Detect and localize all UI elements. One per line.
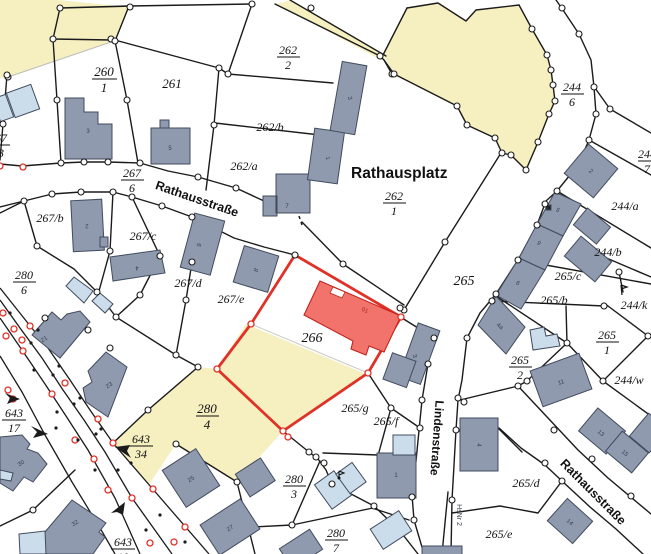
svg-text:6: 6 — [569, 95, 575, 109]
svg-text:34: 34 — [134, 447, 147, 461]
svg-text:6: 6 — [21, 283, 27, 297]
svg-text:17: 17 — [8, 421, 21, 435]
svg-text:Rathausplatz: Rathausplatz — [351, 165, 448, 182]
svg-text:261: 261 — [162, 76, 182, 91]
svg-text:260: 260 — [94, 64, 114, 79]
svg-text:265/f: 265/f — [374, 414, 400, 428]
svg-text:6: 6 — [129, 181, 135, 195]
svg-text:244/k: 244/k — [621, 298, 648, 312]
svg-text:643: 643 — [5, 406, 23, 420]
svg-text:267: 267 — [123, 166, 142, 180]
svg-text:265/c: 265/c — [555, 269, 582, 283]
svg-text:265: 265 — [598, 328, 616, 342]
svg-text:244/a: 244/a — [611, 199, 638, 213]
svg-text:67: 67 — [0, 131, 8, 145]
svg-text:244/w: 244/w — [614, 373, 643, 387]
svg-text:265: 265 — [454, 274, 475, 289]
svg-text:19: 19 — [117, 550, 129, 554]
svg-text:7: 7 — [333, 541, 340, 554]
svg-text:280: 280 — [197, 401, 217, 416]
svg-text:HsNr 2: HsNr 2 — [455, 504, 462, 526]
svg-text:3: 3 — [0, 146, 4, 160]
svg-text:265/e: 265/e — [486, 527, 513, 541]
svg-text:244: 244 — [563, 80, 581, 94]
svg-text:1: 1 — [101, 80, 108, 95]
svg-text:265/d: 265/d — [512, 476, 540, 490]
svg-text:267/c: 267/c — [130, 229, 157, 243]
svg-text:4: 4 — [204, 417, 211, 432]
svg-text:262/b: 262/b — [256, 120, 283, 134]
svg-text:265: 265 — [511, 353, 529, 367]
svg-text:265/b: 265/b — [540, 293, 567, 307]
svg-text:267/e: 267/e — [218, 292, 245, 306]
svg-text:265/g: 265/g — [341, 401, 368, 415]
svg-text:280: 280 — [327, 526, 345, 540]
svg-text:2: 2 — [285, 58, 291, 72]
svg-text:267/d: 267/d — [174, 276, 202, 290]
svg-text:266: 266 — [302, 331, 323, 346]
svg-text:643: 643 — [114, 535, 132, 549]
svg-text:643: 643 — [132, 432, 150, 446]
svg-text:1: 1 — [604, 343, 610, 357]
svg-text:7: 7 — [644, 162, 651, 176]
svg-text:262: 262 — [385, 189, 403, 203]
svg-text:262: 262 — [279, 43, 297, 57]
svg-text:244/b: 244/b — [594, 245, 621, 259]
svg-text:280: 280 — [285, 472, 303, 486]
svg-text:244: 244 — [638, 147, 651, 161]
svg-text:2: 2 — [517, 368, 523, 382]
svg-text:262/a: 262/a — [230, 159, 257, 173]
svg-text:3: 3 — [290, 487, 297, 501]
svg-text:267/b: 267/b — [36, 211, 63, 225]
svg-text:1: 1 — [391, 204, 397, 218]
svg-text:280: 280 — [15, 268, 33, 282]
